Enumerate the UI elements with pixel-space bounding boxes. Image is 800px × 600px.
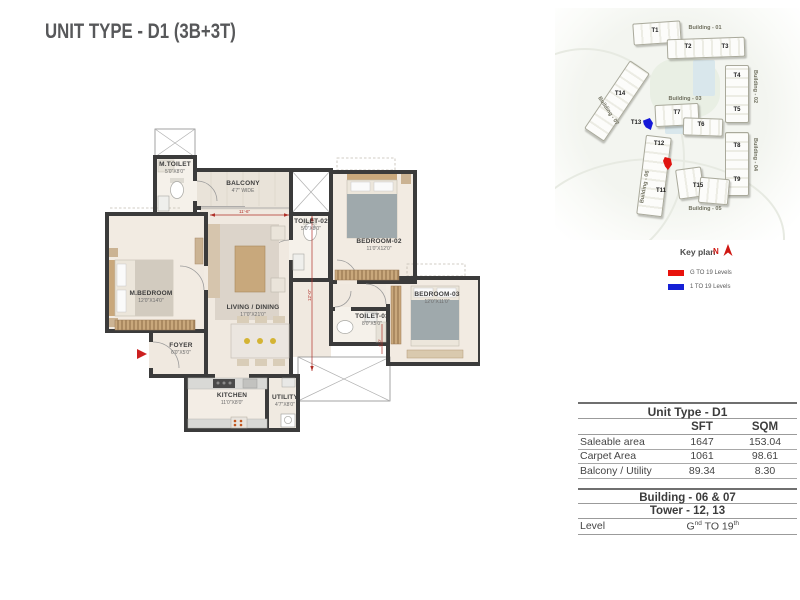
building-label-01: Building - 01 [689,25,722,31]
tower-label-t11: T11 [656,188,666,194]
room-label-toilet02: TOILET-025'0"X8'0" [294,218,328,232]
building-label-02: Building - 02 [752,70,758,103]
building-label-04: Building - 04 [752,138,758,171]
tower-label-t4: T4 [733,73,740,79]
dim-label-small: 4'-0" [377,339,382,347]
north-arrow-icon [723,244,733,257]
legend-swatch-red [668,270,684,276]
tower-label-t9: T9 [733,177,740,183]
header-sft: SFT [671,421,733,433]
tower-label-t15: T15 [693,183,703,189]
entry-arrow [137,349,147,359]
north-label: N [713,247,719,256]
pool [693,60,715,96]
level-label: Level [578,520,669,532]
legend-label-blue: 1 TO 19 Levels [690,284,730,290]
tower-label-t3: T3 [721,44,728,50]
room-label-mbedroom: M.BEDROOM12'0"X14'0" [130,290,173,304]
room-label-kitchen: KITCHEN11'0"X8'0" [217,392,247,406]
tower-label-t13: T13 [631,120,641,126]
building-label-05: Building - 05 [689,206,722,212]
table-gap [578,479,797,488]
room-label-foyer: FOYER6'0"X5'0" [169,342,192,356]
tower-label-t6: T6 [697,122,704,128]
table-row-saleable: Saleable area 1647 153.04 [578,435,797,450]
tower-label-t1: T1 [651,28,658,34]
header-sqm: SQM [733,421,797,433]
spec-table-header: SFT SQM [578,419,797,435]
room-label-toilet03: TOILET-038'0"X5'0" [355,313,389,327]
building-05-block-b [698,177,730,206]
legend-swatch-blue [668,284,684,290]
tower-label-t8: T8 [733,143,740,149]
page-title: UNIT TYPE - D1 (3B+3T) [45,20,236,44]
brochure-page: UNIT TYPE - D1 (3B+3T) [0,0,800,600]
tower-label-t7: T7 [673,110,680,116]
road-curve [555,158,785,240]
table-building: Building - 06 & 07 [578,488,797,504]
key-plan-title: Key plan [680,247,715,257]
dim-label-horizontal: 11'-6" [239,209,250,214]
table-level-row: Level Gnd TO 19th [578,519,797,535]
floor-plan: M.TOILET5'0"X8'0" BALCONY4'7" WIDE TOILE… [85,128,480,446]
spec-table: Unit Type - D1 SFT SQM Saleable area 164… [578,402,797,535]
site-map: T1 T2 T3 T4 T5 T6 T7 T8 T9 T11 T12 T13 T… [555,8,800,240]
tower-label-t14: T14 [615,91,625,97]
spec-table-title: Unit Type - D1 [578,402,797,419]
room-label-bedroom02: BEDROOM-0211'0"X12'0" [356,238,401,252]
legend-item-red: G TO 19 Levels [668,270,732,276]
room-label-utility: UTILITY4'7"X8'0" [272,394,298,408]
tower-label-t2: T2 [684,44,691,50]
room-label-living-dining: LIVING / DINING17'0"X21'0" [227,304,280,318]
building-01-block-b [667,37,746,60]
table-row-carpet: Carpet Area 1061 98.61 [578,450,797,465]
legend-label-red: G TO 19 Levels [690,270,732,276]
legend-item-blue: 1 TO 19 Levels [668,284,730,290]
key-plan: T1 T2 T3 T4 T5 T6 T7 T8 T9 T11 T12 T13 T… [555,8,800,308]
table-tower: Tower - 12, 13 [578,504,797,519]
level-value: Gnd TO 19th [669,520,798,533]
table-row-balcony-utility: Balcony / Utility 89.34 8.30 [578,464,797,479]
tower-label-t5: T5 [733,107,740,113]
building-label-03: Building - 03 [669,96,702,102]
dim-label-vertical: 12'-0" [307,290,312,301]
room-label-mtoilet: M.TOILET5'0"X8'0" [159,161,191,175]
room-label-balcony: BALCONY4'7" WIDE [226,180,260,194]
room-label-bedroom03: BEDROOM-0312'0"X11'0" [414,291,459,305]
tower-label-t12: T12 [654,141,664,147]
